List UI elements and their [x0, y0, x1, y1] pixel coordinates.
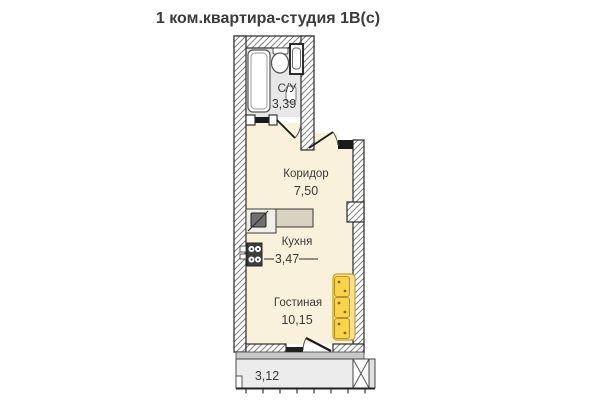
- balcony-glazing-sill: [236, 352, 364, 359]
- bathroom-label: С/У: [278, 83, 298, 95]
- bathroom-door-frame-left: [246, 115, 255, 125]
- balcony-floor: [236, 359, 353, 388]
- kitchen-area: 3,47: [275, 252, 299, 266]
- bathroom-area: 3,39: [272, 97, 296, 111]
- left-wall: [234, 36, 246, 352]
- living-room-label: Гостиная: [274, 297, 322, 309]
- floor-plan-canvas: 1 ком.квартира-студия 1В(с): [0, 0, 600, 400]
- right-wall-pilaster: [347, 202, 364, 222]
- sofa-cushions: [335, 277, 350, 339]
- balcony-right-post: [369, 359, 375, 388]
- entry-wall-stub: [338, 140, 353, 149]
- sofa-icon: [333, 274, 355, 340]
- balcony-area: 3,12: [255, 369, 279, 383]
- corridor-label: Коридор: [283, 168, 328, 180]
- living-room-area: 10,15: [281, 313, 312, 327]
- toilet-icon: [272, 53, 289, 73]
- stove-icon: [247, 243, 262, 266]
- corridor-area: 7,50: [294, 184, 318, 198]
- balcony-window: [286, 347, 303, 352]
- floor-plan-page: 1 ком.квартира-студия 1В(с): [0, 0, 600, 400]
- bathroom-partition: [253, 117, 271, 123]
- page-title: 1 ком.квартира-студия 1В(с): [156, 10, 380, 27]
- kitchen-label: Кухня: [282, 236, 313, 248]
- bathroom-door-frame-right: [269, 115, 277, 125]
- wall-box-b: [240, 254, 246, 259]
- wall-box-a: [240, 246, 246, 252]
- balcony-left-post: [236, 376, 242, 388]
